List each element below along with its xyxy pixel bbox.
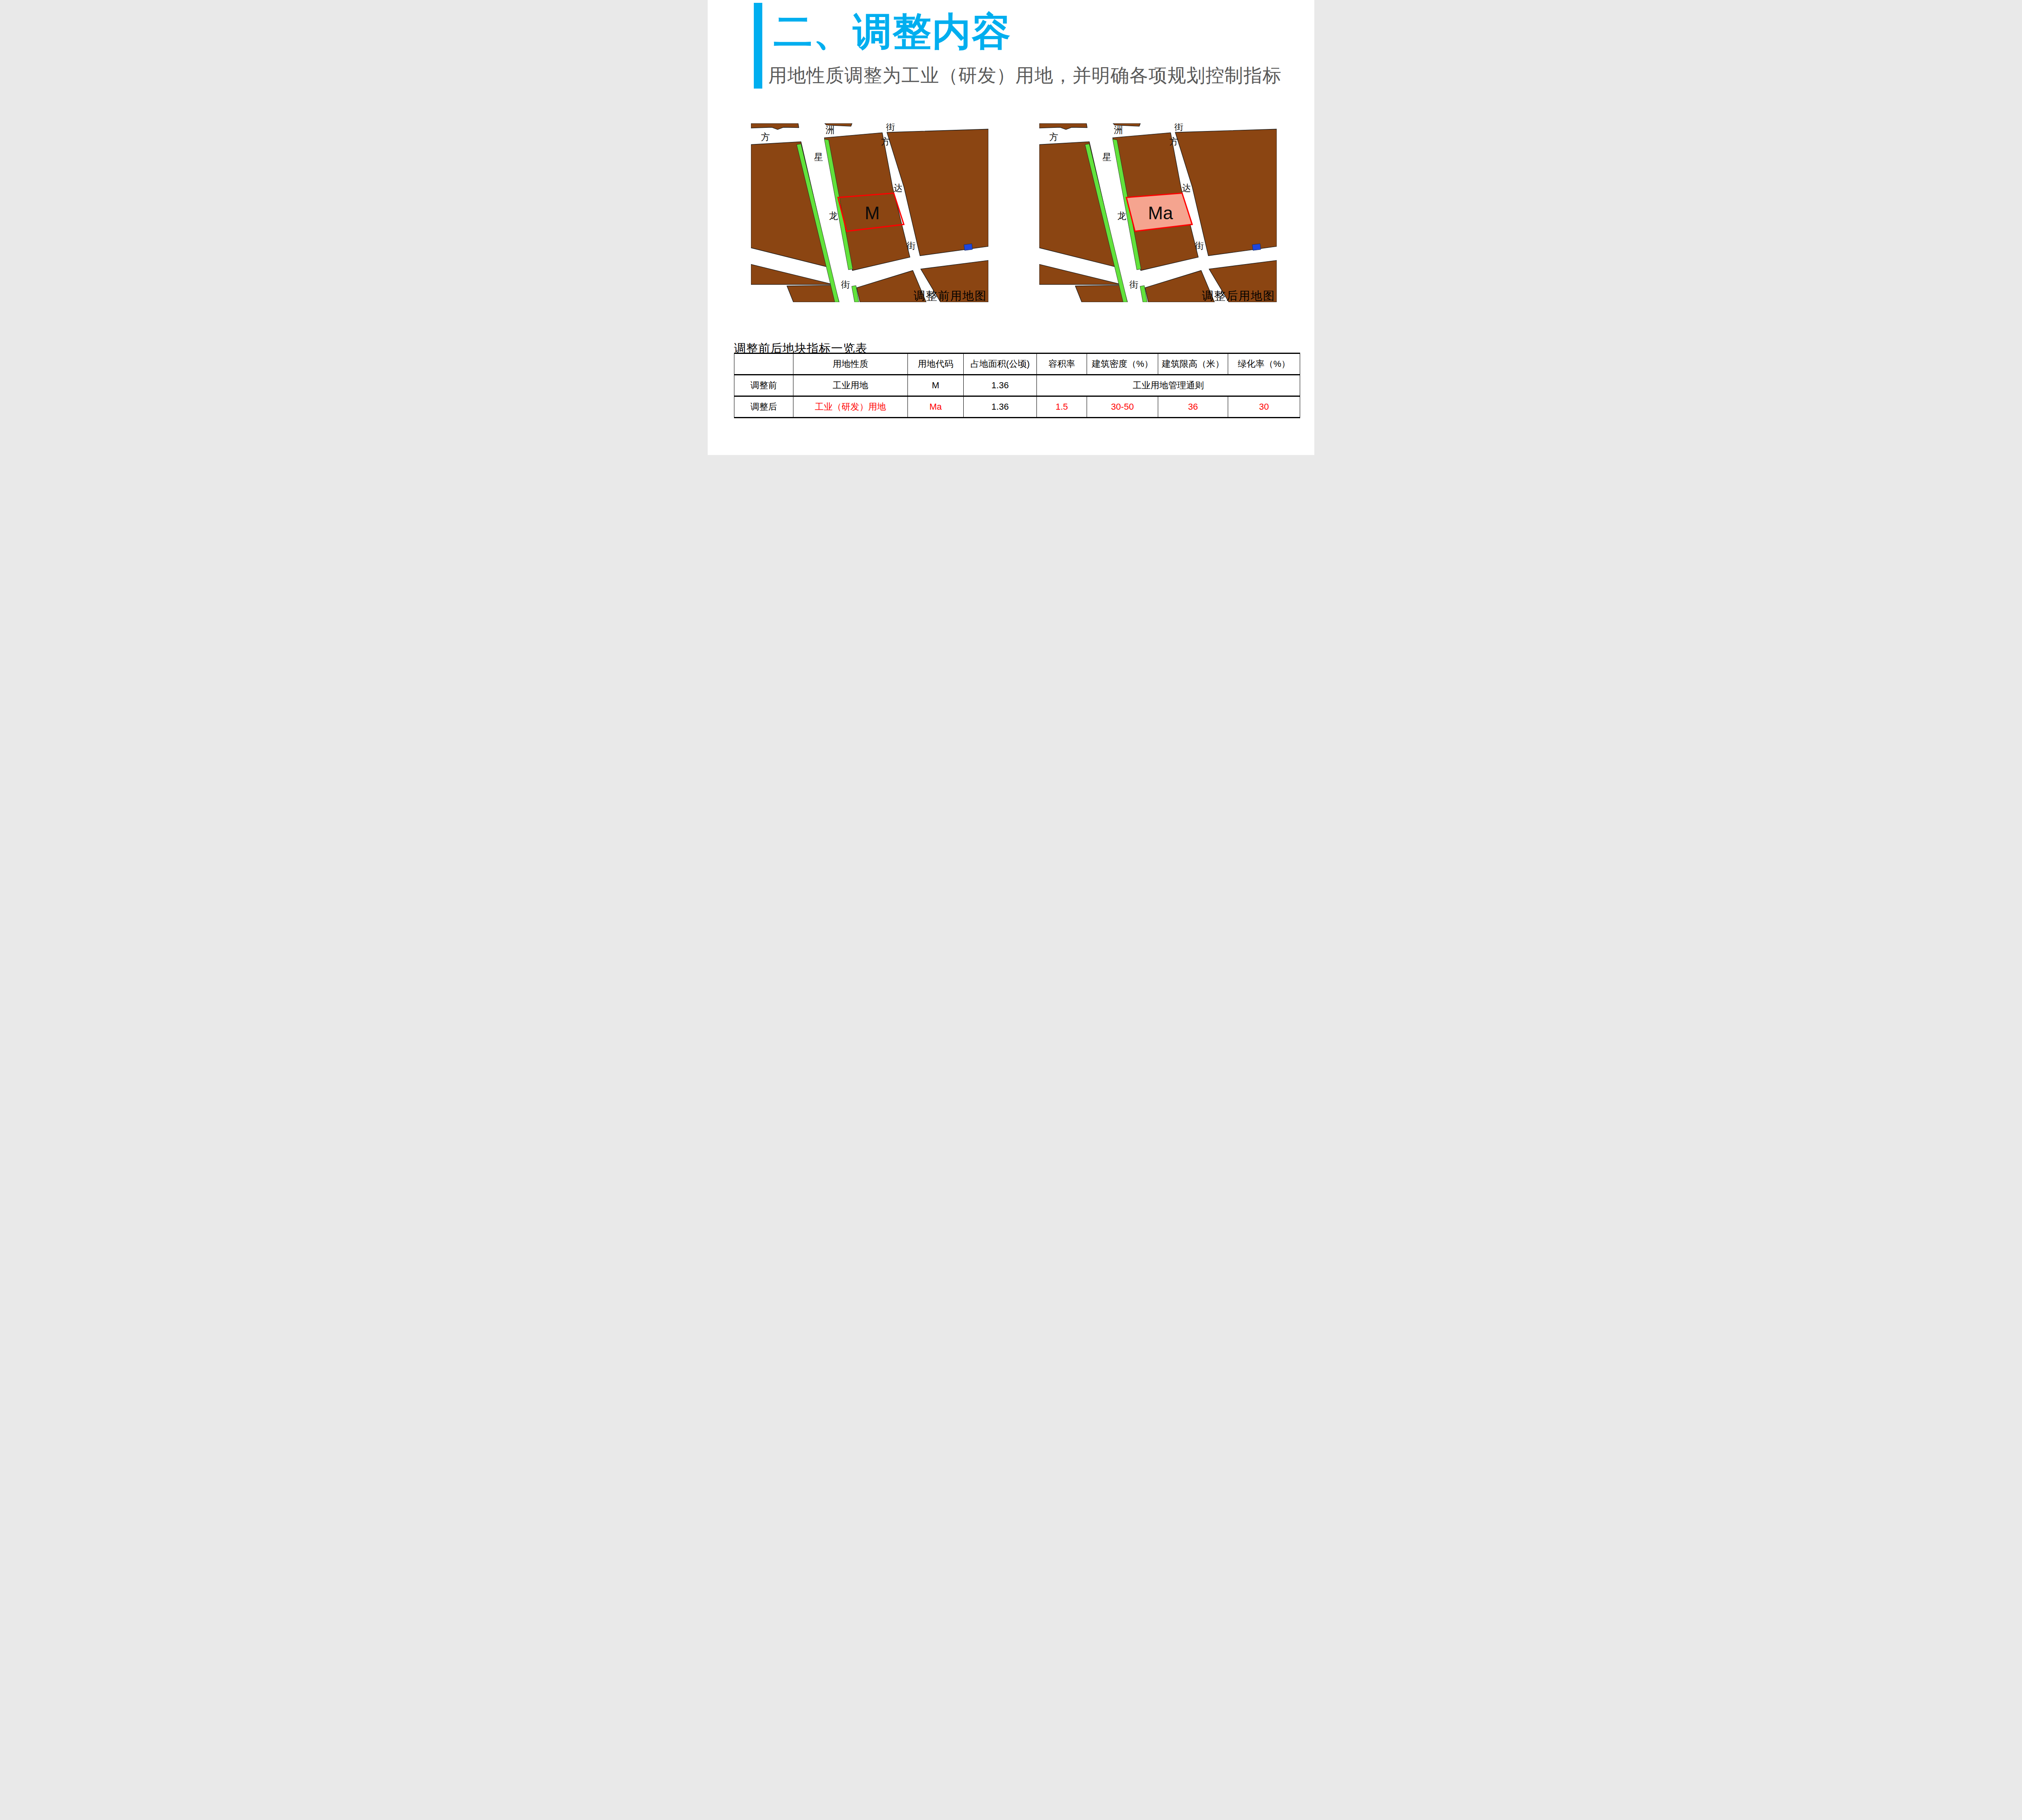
parcel-label-before: M bbox=[865, 203, 880, 223]
street-label: 街 bbox=[907, 241, 916, 251]
street-label: 达 bbox=[894, 183, 903, 193]
street-label: 洲 bbox=[826, 125, 835, 135]
header-cell-area: 占地面积(公顷) bbox=[964, 353, 1037, 375]
street-label: 洲 bbox=[1114, 125, 1123, 135]
landuse-map-after: 方 洲 街 方 星 达 龙 街 街 Ma 调整后用地图 bbox=[1039, 123, 1277, 302]
street-label: 方 bbox=[1170, 136, 1178, 146]
street-label: 方 bbox=[1049, 132, 1058, 142]
row-before-nature: 工业用地 bbox=[793, 375, 908, 396]
street-label: 星 bbox=[814, 152, 823, 162]
row-after-label: 调整后 bbox=[734, 396, 793, 418]
header-cell-far: 容积率 bbox=[1037, 353, 1087, 375]
accent-bar bbox=[754, 3, 762, 89]
parcel-label-after: Ma bbox=[1148, 203, 1173, 223]
header-cell-green: 绿化率（%） bbox=[1228, 353, 1300, 375]
street-label: 街 bbox=[1129, 279, 1138, 290]
page-subtitle: 用地性质调整为工业（研发）用地，并明确各项规划控制指标 bbox=[768, 63, 1282, 88]
table-row-before: 调整前 工业用地 M 1.36 工业用地管理通则 bbox=[734, 375, 1300, 396]
row-after-green: 30 bbox=[1228, 396, 1300, 418]
row-before-area: 1.36 bbox=[964, 375, 1037, 396]
street-label: 龙 bbox=[829, 211, 838, 221]
map-after-svg: 方 洲 街 方 星 达 龙 街 街 Ma 调整后用地图 bbox=[1039, 123, 1277, 302]
header-cell-blank bbox=[734, 353, 793, 375]
slide: 二、调整内容 用地性质调整为工业（研发）用地，并明确各项规划控制指标 方 洲 街… bbox=[708, 0, 1314, 455]
street-label: 龙 bbox=[1117, 211, 1127, 221]
street-label: 方 bbox=[761, 132, 770, 142]
header-cell-nature: 用地性质 bbox=[793, 353, 908, 375]
page-title: 二、调整内容 bbox=[774, 11, 1011, 52]
row-before-merged: 工业用地管理通则 bbox=[1037, 375, 1300, 396]
street-label: 达 bbox=[1182, 183, 1191, 193]
map-before-svg: 方 洲 街 方 星 达 龙 街 街 M 调整前用地图 bbox=[751, 123, 988, 302]
street-label: 街 bbox=[841, 279, 850, 290]
table-row-after: 调整后 工业（研发）用地 Ma 1.36 1.5 30-50 36 30 bbox=[734, 396, 1300, 418]
landuse-map-before: 方 洲 街 方 星 达 龙 街 街 M 调整前用地图 bbox=[751, 123, 988, 302]
row-before-label: 调整前 bbox=[734, 375, 793, 396]
indicator-table: 用地性质 用地代码 占地面积(公顷) 容积率 建筑密度（%） 建筑限高（米） 绿… bbox=[734, 353, 1300, 418]
street-label: 方 bbox=[881, 136, 890, 146]
map-caption-after: 调整后用地图 bbox=[1202, 289, 1275, 302]
row-after-nature: 工业（研发）用地 bbox=[793, 396, 908, 418]
header-cell-code: 用地代码 bbox=[908, 353, 964, 375]
street-label: 街 bbox=[1174, 123, 1183, 132]
row-after-height: 36 bbox=[1158, 396, 1228, 418]
map-caption-before: 调整前用地图 bbox=[914, 289, 987, 302]
street-label: 街 bbox=[1195, 241, 1204, 251]
row-after-far: 1.5 bbox=[1037, 396, 1087, 418]
street-label: 星 bbox=[1102, 152, 1111, 162]
street-label: 街 bbox=[886, 123, 895, 132]
row-after-density: 30-50 bbox=[1087, 396, 1158, 418]
table-header-row: 用地性质 用地代码 占地面积(公顷) 容积率 建筑密度（%） 建筑限高（米） 绿… bbox=[734, 353, 1300, 375]
row-after-area: 1.36 bbox=[964, 396, 1037, 418]
header-cell-density: 建筑密度（%） bbox=[1087, 353, 1158, 375]
header-cell-height: 建筑限高（米） bbox=[1158, 353, 1228, 375]
row-after-code: Ma bbox=[908, 396, 964, 418]
row-before-code: M bbox=[908, 375, 964, 396]
